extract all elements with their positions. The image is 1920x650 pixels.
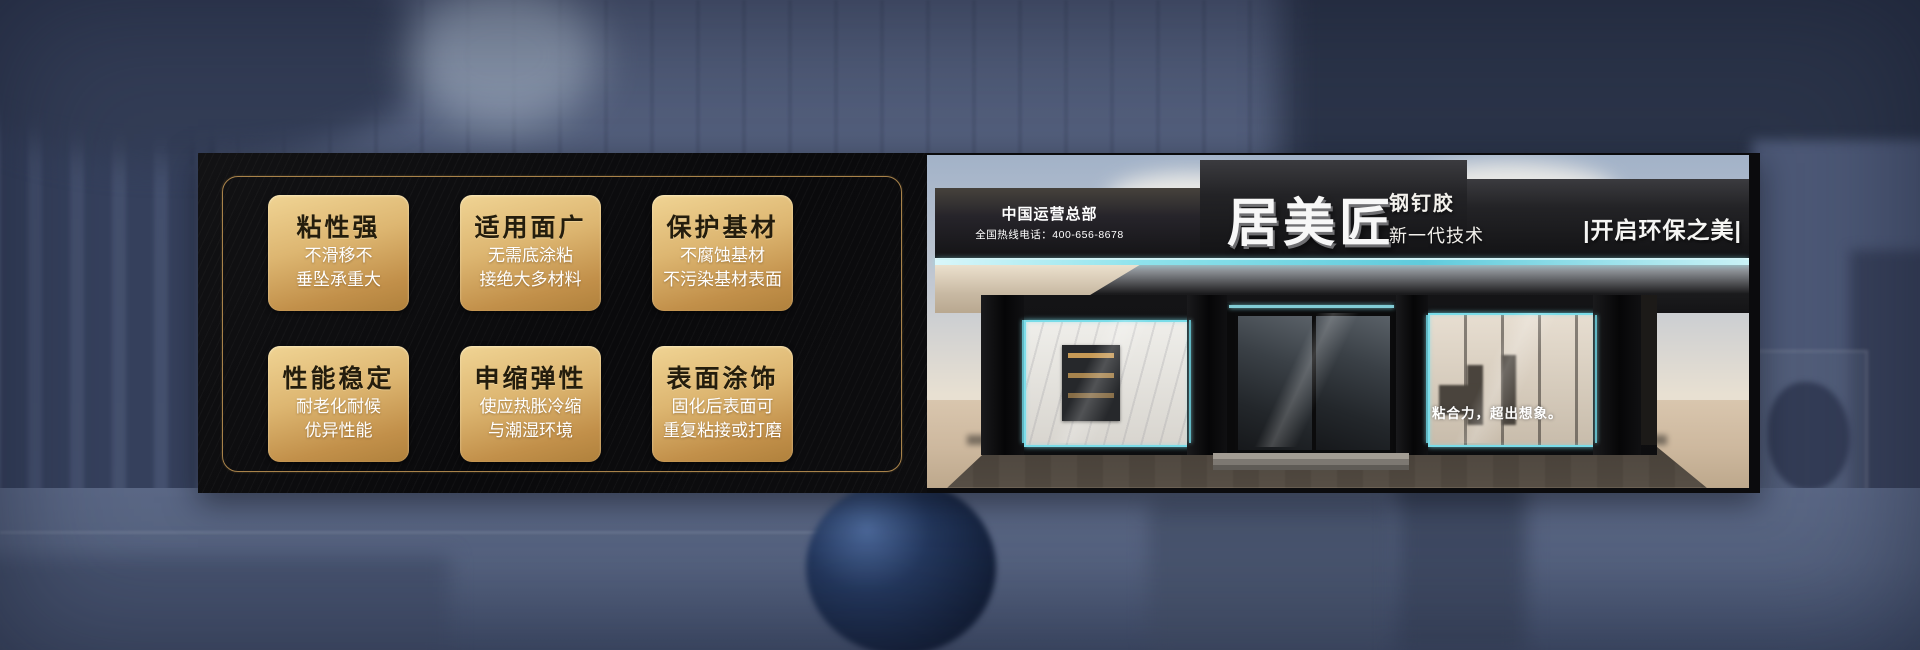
technology-label: 新一代技术	[1389, 222, 1484, 248]
feature-line: 接绝大多材料	[460, 268, 601, 292]
feature-card-wide-use: 适用面广 无需底涂粘 接绝大多材料	[460, 195, 601, 311]
background-glossy-object-blur	[806, 480, 996, 650]
background-plant-blur	[1768, 382, 1850, 490]
hq-label: 中国运营总部	[937, 203, 1162, 224]
promo-banner-stage: 粘性强 不滑移不 垂坠承重大 适用面广 无需底涂粘 接绝大多材料 保护基材 不腐…	[0, 0, 1920, 650]
feature-card-elastic: 申缩弹性 使应热胀冷缩 与潮湿环境	[460, 346, 601, 462]
feature-line: 固化后表面可	[652, 395, 793, 419]
product-name: 钢钉胶	[1389, 187, 1484, 216]
side-wall-edge	[1641, 295, 1657, 445]
feature-title: 表面涂饰	[652, 359, 793, 395]
feature-line: 不滑移不	[268, 244, 409, 268]
feature-card-adhesion: 粘性强 不滑移不 垂坠承重大	[268, 195, 409, 311]
banner-container: 粘性强 不滑移不 垂坠承重大 适用面广 无需底涂粘 接绝大多材料 保护基材 不腐…	[198, 153, 1760, 493]
pillar-led	[1426, 315, 1428, 443]
feature-line: 无需底涂粘	[460, 244, 601, 268]
feature-line: 不污染基材表面	[652, 268, 793, 292]
features-panel: 粘性强 不滑移不 垂坠承重大 适用面广 无需底涂粘 接绝大多材料 保护基材 不腐…	[198, 153, 927, 493]
window-slogan: 粘合力，超出想象。	[1432, 402, 1592, 422]
feature-line: 耐老化耐候	[268, 395, 409, 419]
feature-line: 与潮湿环境	[460, 419, 601, 443]
brand-sign: 居美匠	[1227, 181, 1395, 256]
product-text-block: 钢钉胶 新一代技术	[1389, 187, 1484, 248]
door-glare	[1235, 313, 1387, 447]
pillar	[1593, 295, 1641, 455]
feature-line: 优异性能	[268, 419, 409, 443]
right-slogan: |开启环保之美|	[1527, 211, 1742, 245]
hotline-label: 全国热线电话：400-656-8678	[937, 227, 1162, 242]
storefront-photo: 中国运营总部 全国热线电话：400-656-8678 居美匠 钢钉胶 新一代技术…	[927, 155, 1749, 488]
feature-line: 使应热胀冷缩	[460, 395, 601, 419]
window-glare	[1428, 313, 1593, 443]
feature-line: 垂坠承重大	[268, 268, 409, 292]
feature-title: 申缩弹性	[460, 359, 601, 395]
step	[1213, 465, 1409, 470]
pillar	[981, 295, 1024, 455]
pillar-led	[1022, 320, 1024, 443]
feature-card-stable: 性能稳定 耐老化耐候 优异性能	[268, 346, 409, 462]
feature-title: 粘性强	[268, 208, 409, 244]
background-bottom-shadow	[0, 556, 450, 650]
feature-card-protect-substrate: 保护基材 不腐蚀基材 不污染基材表面	[652, 195, 793, 311]
background-furniture-blur	[1148, 500, 1393, 650]
hq-text-block: 中国运营总部 全国热线电话：400-656-8678	[937, 203, 1162, 242]
feature-line: 不腐蚀基材	[652, 244, 793, 268]
feature-title: 适用面广	[460, 208, 601, 244]
entry-door-bay	[1227, 303, 1396, 453]
pillar-led	[1595, 315, 1597, 443]
pillar-led	[1189, 320, 1191, 443]
door-led-trim	[1229, 305, 1394, 308]
window-glare	[1024, 320, 1187, 443]
pillar	[1187, 295, 1227, 455]
feature-title: 性能稳定	[268, 359, 409, 395]
feature-title: 保护基材	[652, 208, 793, 244]
pillar	[1396, 295, 1428, 455]
entry-steps	[1213, 453, 1409, 470]
feature-card-surface-finish: 表面涂饰 固化后表面可 重复粘接或打磨	[652, 346, 793, 462]
feature-line: 重复粘接或打磨	[652, 419, 793, 443]
